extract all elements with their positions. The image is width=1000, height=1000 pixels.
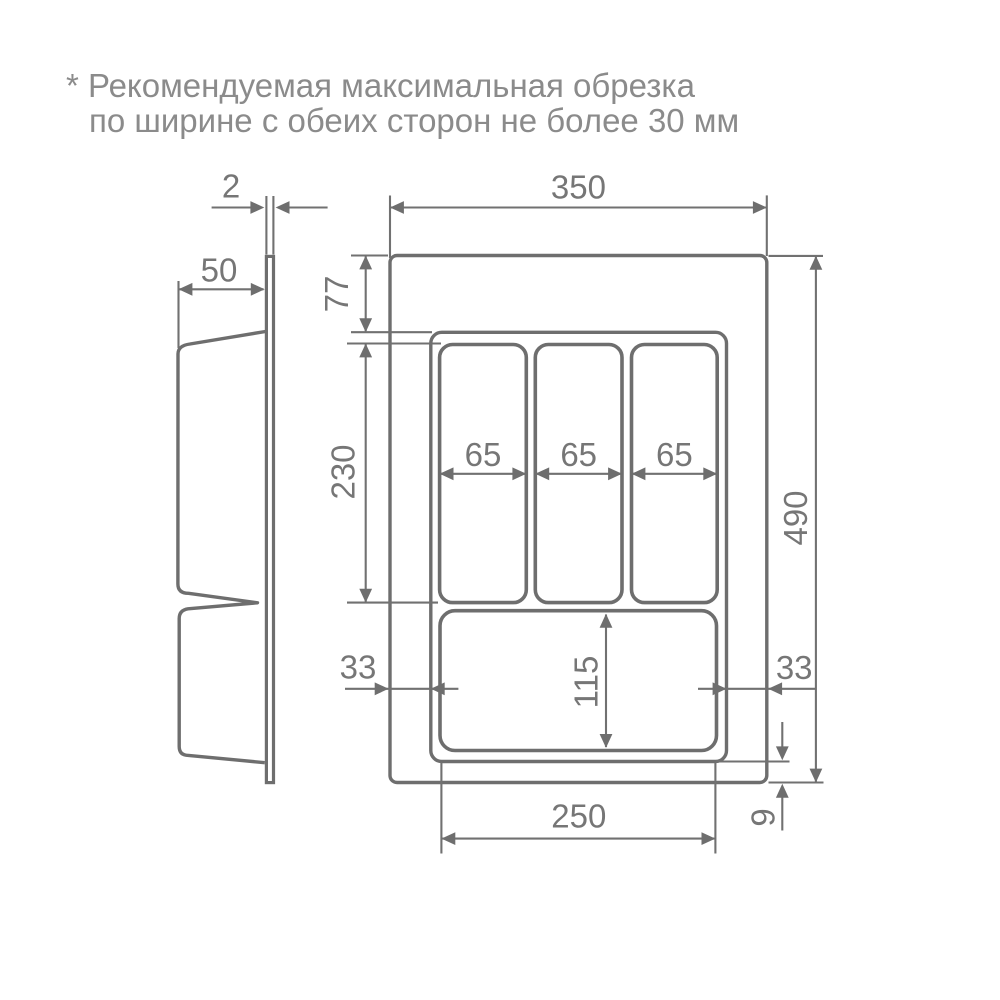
svg-text:33: 33 (340, 649, 377, 686)
svg-text:65: 65 (560, 436, 597, 473)
svg-text:250: 250 (551, 798, 606, 835)
svg-text:65: 65 (465, 436, 502, 473)
svg-text:350: 350 (551, 169, 606, 206)
svg-text:33: 33 (776, 649, 813, 686)
svg-text:2: 2 (222, 168, 240, 205)
svg-text:65: 65 (656, 436, 693, 473)
svg-text:490: 490 (777, 490, 814, 545)
svg-text:* Рекомендуемая максимальная о: * Рекомендуемая максимальная обрезка (66, 67, 696, 104)
svg-text:230: 230 (325, 444, 362, 499)
svg-text:9: 9 (745, 808, 782, 826)
svg-text:по ширине с обеих сторон не бо: по ширине с обеих сторон не более 30 мм (89, 102, 739, 139)
svg-text:50: 50 (201, 252, 238, 289)
svg-text:77: 77 (318, 276, 355, 313)
svg-text:115: 115 (568, 656, 605, 709)
